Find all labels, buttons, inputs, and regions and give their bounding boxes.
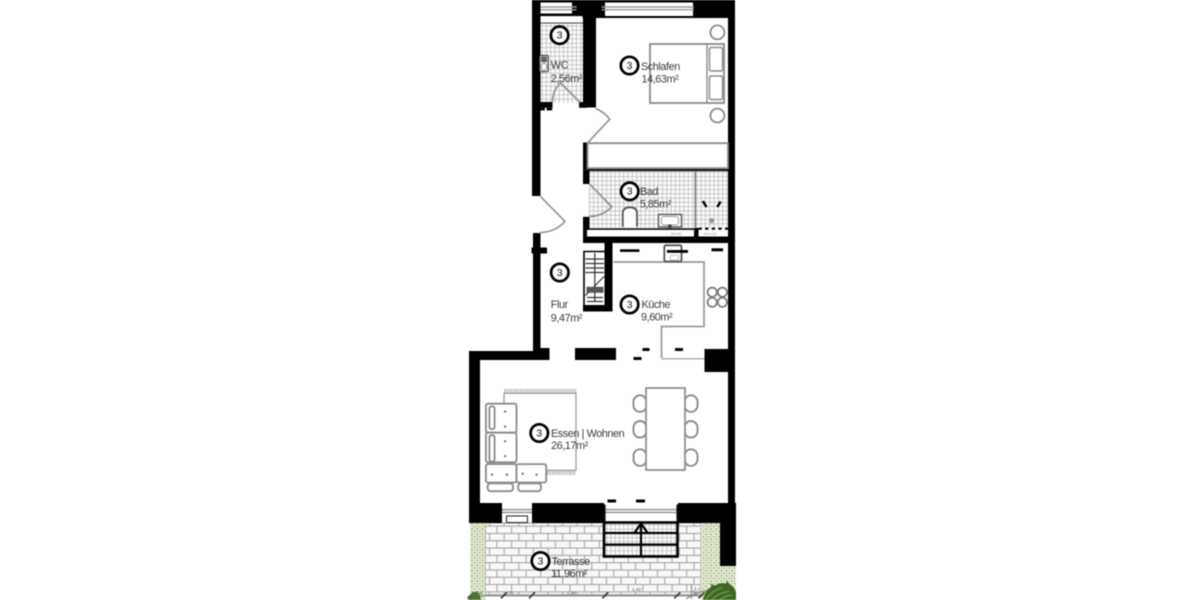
svg-text:90x120: 90x120 <box>704 231 718 236</box>
svg-text:14,63m²: 14,63m² <box>642 73 680 85</box>
svg-text:3: 3 <box>538 556 544 567</box>
svg-text:9,60m²: 9,60m² <box>641 312 673 324</box>
svg-text:9,47m²: 9,47m² <box>551 313 583 325</box>
svg-text:Bad: Bad <box>640 186 658 198</box>
svg-text:3: 3 <box>627 300 633 311</box>
svg-text:1,42: 1,42 <box>632 587 641 592</box>
svg-text:76: 76 <box>508 590 514 595</box>
svg-text:5,85m²: 5,85m² <box>640 199 672 211</box>
svg-text:26,17m²: 26,17m² <box>551 440 589 452</box>
svg-text:2,56m²: 2,56m² <box>551 73 583 85</box>
svg-text:3: 3 <box>557 268 563 279</box>
svg-text:Essen | Wohnen: Essen | Wohnen <box>551 428 625 440</box>
svg-text:Flur: Flur <box>551 299 569 311</box>
svg-text:1,1: 1,1 <box>694 586 701 591</box>
svg-text:11,96m²: 11,96m² <box>551 568 588 580</box>
svg-text:3: 3 <box>557 31 563 42</box>
svg-text:WC: WC <box>551 60 569 72</box>
svg-text:1,96: 1,96 <box>567 590 576 595</box>
svg-text:3: 3 <box>627 187 633 198</box>
svg-text:Schlafen: Schlafen <box>641 61 680 73</box>
svg-text:60x60: 60x60 <box>671 231 683 236</box>
svg-text:Terrasse: Terrasse <box>552 556 591 568</box>
svg-text:3: 3 <box>627 61 633 72</box>
svg-text:Küche: Küche <box>642 299 671 311</box>
svg-text:3: 3 <box>536 428 542 439</box>
